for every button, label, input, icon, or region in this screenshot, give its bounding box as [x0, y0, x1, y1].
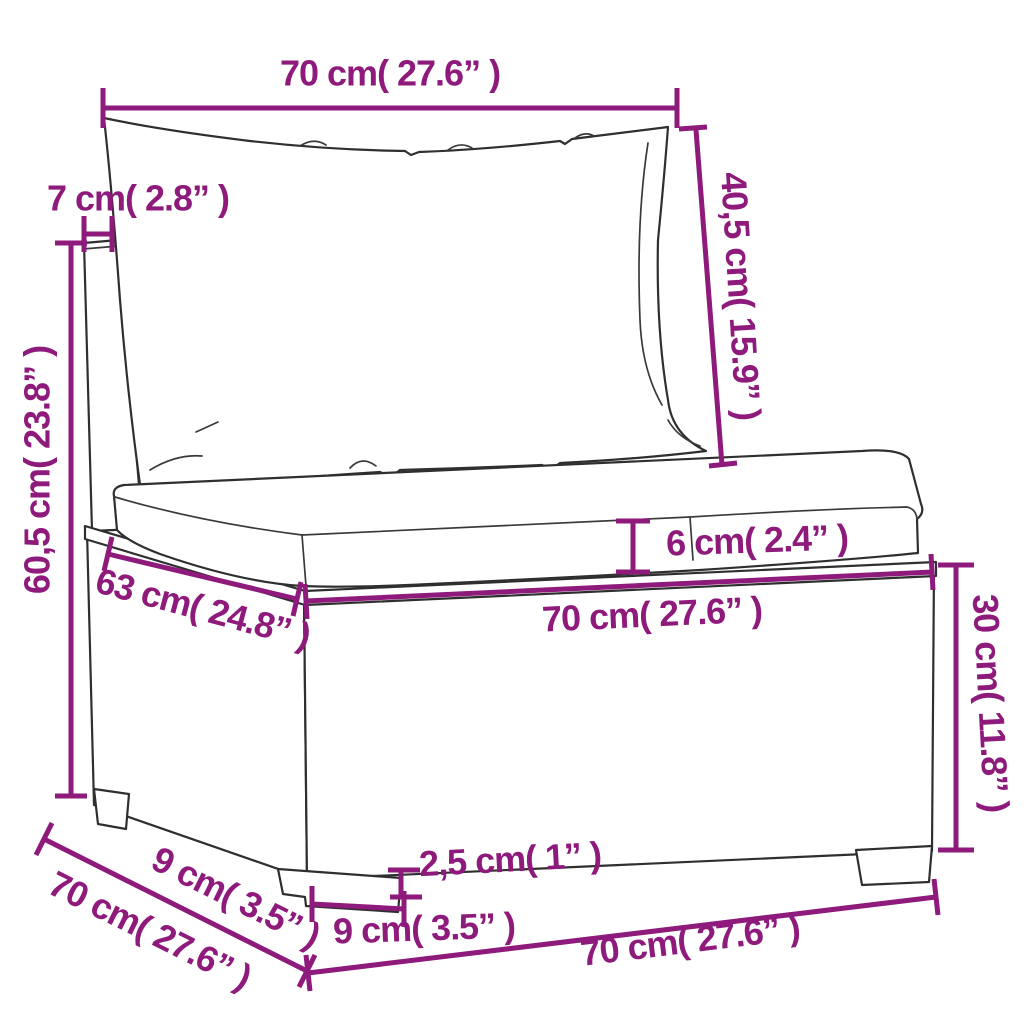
dim-leg-height-label: 2,5 cm( 1” )	[418, 834, 602, 884]
dim-top-width: 70 cm( 27.6” )	[103, 53, 677, 129]
dim-bottom-width-label: 70 cm( 27.6” )	[578, 906, 801, 974]
dim-base-height-label: 30 cm( 11.8” )	[965, 593, 1017, 813]
leg-left	[94, 789, 129, 829]
dim-leg-height: 2,5 cm( 1” )	[388, 834, 602, 897]
dim-total-height: 60,5 cm( 23.8” )	[17, 243, 88, 796]
dim-top-width-label: 70 cm( 27.6” )	[280, 53, 500, 94]
dim-front-leg-width-label: 9 cm( 3.5” )	[332, 904, 515, 951]
dim-total-height-label: 60,5 cm( 23.8” )	[17, 346, 58, 594]
dim-total-height-line	[55, 243, 87, 796]
sofa-section-diagram-svg: 70 cm( 27.6” ) 7 cm( 2.8” ) 40,5 cm( 15.…	[0, 0, 1024, 1024]
dim-back-cushion-height: 40,5 cm( 15.9” )	[679, 127, 769, 466]
dim-back-thickness-label: 7 cm( 2.8” )	[47, 178, 229, 219]
dim-back-cushion-height-label: 40,5 cm( 15.9” )	[713, 171, 769, 421]
leg-right	[856, 846, 932, 885]
back-cushion	[104, 118, 706, 499]
dim-seat-cushion-thickness-label: 6 cm( 2.4” )	[665, 516, 848, 563]
dim-base-height: 30 cm( 11.8” )	[938, 565, 1017, 850]
dim-top-width-line	[103, 88, 677, 128]
product-dimension-diagram: 70 cm( 27.6” ) 7 cm( 2.8” ) 40,5 cm( 15.…	[0, 0, 1024, 1024]
